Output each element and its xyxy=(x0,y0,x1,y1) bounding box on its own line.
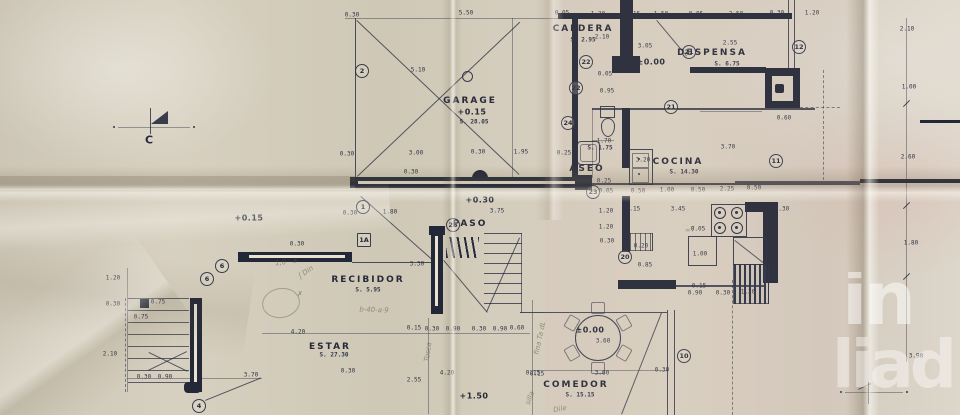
dimension-label: 1.20 xyxy=(599,208,613,215)
level-label: ±0.00 xyxy=(637,58,666,67)
ref-bubble-22: 22 xyxy=(569,81,583,95)
area-label: S. 6.75 xyxy=(714,61,739,68)
dimension-label: 0.30 xyxy=(472,326,486,333)
pencil-note: silla xyxy=(524,390,536,406)
dimension-label: 1.00 xyxy=(902,84,916,91)
area-label: S. 27.30 xyxy=(320,352,349,359)
level-label: +1.50 xyxy=(460,392,489,401)
room-label: ASEO xyxy=(569,164,604,174)
dimension-label: 1.95 xyxy=(514,149,528,156)
area-label: S. 15.15 xyxy=(566,392,595,399)
ref-bubble-20: 20 xyxy=(618,250,632,264)
dimension-label: 2.55 xyxy=(723,40,737,47)
dimension-label: 0.95 xyxy=(600,88,614,95)
ref-bubble-23: 23 xyxy=(586,185,600,199)
dimension-label: 0.90 xyxy=(158,374,172,381)
dimension-label: 2.55 xyxy=(407,377,421,384)
dimension-label: 0.25 xyxy=(597,178,611,185)
dimension-label: 0.60 xyxy=(777,115,791,122)
annotation-layer: 0.305.500.051.200.151.500.052.500.301.20… xyxy=(0,0,960,415)
dimension-label: 1.20 xyxy=(805,10,819,17)
dimension-label: 3.60 xyxy=(596,338,610,345)
area-label: S. 28.05 xyxy=(460,119,489,126)
dimension-label: 0.30 xyxy=(341,368,355,375)
dimension-label: 0.05 xyxy=(599,188,613,195)
dimension-label: 0.90 xyxy=(688,290,702,297)
dimension-label: 3.70 xyxy=(721,144,735,151)
ref-bubble-21: 21 xyxy=(682,45,696,59)
pencil-note: ʃ Din xyxy=(297,264,315,280)
room-label: COMEDOR xyxy=(543,380,608,390)
dimension-label: 0.75 xyxy=(151,299,165,306)
dimension-label: 2.10 xyxy=(595,34,609,41)
room-label: COCINA xyxy=(653,157,704,167)
dimension-label: 1.70 xyxy=(597,138,611,145)
dimension-label: 0.30 xyxy=(137,374,151,381)
dimension-label: 0.50 xyxy=(631,188,645,195)
dimension-label: 0.05 xyxy=(598,71,612,78)
dimension-label: 4.20 xyxy=(440,370,454,377)
area-label: S. 5.95 xyxy=(355,287,380,294)
dimension-label: 1.80 xyxy=(383,209,397,216)
dimension-label: 0.90 xyxy=(446,326,460,333)
dimension-label: 2.25 xyxy=(720,186,734,193)
dimension-label: 0.30 xyxy=(716,290,730,297)
dimension-label: 0.05 xyxy=(689,11,703,18)
dimension-label: 0.50 xyxy=(691,187,705,194)
ref-bubble-6: 6 xyxy=(200,272,214,286)
dimension-label: 5.10 xyxy=(411,67,425,74)
ref-bubble-21: 21 xyxy=(664,100,678,114)
level-label: ±0.00 xyxy=(576,326,605,335)
dimension-label: 0.15 xyxy=(626,11,640,18)
dimension-label: 1.20 xyxy=(599,224,613,231)
pencil-note: 1,0 · a xyxy=(274,257,297,268)
dimension-label: 3.60 xyxy=(595,370,609,377)
dimension-label: 1.00 xyxy=(693,251,707,258)
dimension-label: 0.60 xyxy=(510,325,524,332)
dimension-label: 3.90 xyxy=(909,353,923,360)
dimension-label: 0.25 xyxy=(557,150,571,157)
room-label: ESTAR xyxy=(309,342,351,352)
ref-bubble-22: 22 xyxy=(579,55,593,69)
dimension-label: 4.20 xyxy=(291,329,305,336)
dimension-label: 2.10 xyxy=(900,26,914,33)
room-label: RECIBIDOR xyxy=(331,275,404,285)
dimension-label: 0.30 xyxy=(106,301,120,308)
pencil-note: ✗ xyxy=(297,290,303,298)
dimension-label: 3.30 xyxy=(410,261,424,268)
ref-bubble-25: 25 xyxy=(446,218,460,232)
dimension-label: 2.60 xyxy=(901,154,915,161)
ref-bubble-1A: 1A xyxy=(357,233,371,247)
ref-bubble-12: 12 xyxy=(792,40,806,54)
dimension-label: 0.30 xyxy=(770,10,784,17)
dimension-label: 0.15 xyxy=(692,283,706,290)
ref-bubble-4: 4 xyxy=(192,399,206,413)
pencil-note: Tosca xyxy=(423,342,434,362)
dimension-label: 0.20 xyxy=(634,243,648,250)
dimension-label: 0.15 xyxy=(626,206,640,213)
level-label: +0.30 xyxy=(466,196,495,205)
dimension-label: 3.45 xyxy=(671,206,685,213)
ref-bubble-1: 1 xyxy=(356,200,370,214)
dimension-label: 3.70 xyxy=(244,372,258,379)
dimension-label: 0.30 xyxy=(345,12,359,19)
dimension-label: 3.20 xyxy=(636,157,650,164)
level-label: +0.15 xyxy=(235,214,264,223)
dimension-label: 0.30 xyxy=(290,241,304,248)
ref-bubble-10: 10 xyxy=(677,349,691,363)
dimension-label: 1.80 xyxy=(904,240,918,247)
room-label: GARAGE xyxy=(443,96,497,106)
dimension-label: 0.15 xyxy=(530,371,544,378)
dimension-label: 1.20 xyxy=(106,275,120,282)
dimension-label: 0.05 xyxy=(555,10,569,17)
dimension-label: 0.30 xyxy=(343,210,357,217)
area-label: S. 2.95 xyxy=(570,37,595,44)
dimension-label: 0.30 xyxy=(471,149,485,156)
floor-plan: C 0.305.500.051.200.151.500.052.500.301.… xyxy=(0,0,960,415)
pencil-note: ≈7 xyxy=(684,225,696,235)
dimension-label: 2.50 xyxy=(729,11,743,18)
dimension-label: 3.05 xyxy=(638,43,652,50)
ref-bubble-11: 11 xyxy=(769,154,783,168)
level-label: +0.15 xyxy=(458,108,487,117)
dimension-label: 0.30 xyxy=(775,206,789,213)
dimension-label: 0.90 xyxy=(493,326,507,333)
dimension-label: 0.15 xyxy=(407,325,421,332)
ref-bubble-6: 6 xyxy=(215,259,229,273)
ref-bubble-24: 24 xyxy=(561,116,575,130)
pencil-note: Dile xyxy=(553,404,568,414)
dimension-label: 3.75 xyxy=(490,208,504,215)
dimension-label: 0.85 xyxy=(638,262,652,269)
dimension-label: 1.20 xyxy=(591,11,605,18)
dimension-label: 0.30 xyxy=(340,151,354,158)
pencil-note: b-40-a·9 xyxy=(359,305,389,314)
dimension-label: 2.10 xyxy=(103,351,117,358)
room-label: CALDERA xyxy=(553,24,614,34)
area-label: S. 14.30 xyxy=(670,169,699,176)
dimension-label: 1.20 xyxy=(741,289,755,296)
dimension-label: 3.00 xyxy=(409,150,423,157)
dimension-label: 0.30 xyxy=(404,169,418,176)
dimension-label: 0.30 xyxy=(655,367,669,374)
dimension-label: 5.50 xyxy=(459,10,473,17)
area-label: S. 1.75 xyxy=(587,145,612,152)
ref-bubble-2: 2 xyxy=(355,64,369,78)
dimension-label: 0.75 xyxy=(134,314,148,321)
dimension-label: 0.30 xyxy=(600,238,614,245)
dimension-label: 1.00 xyxy=(660,187,674,194)
dimension-label: 0.50 xyxy=(747,185,761,192)
pencil-note: fina Ta dL xyxy=(533,321,548,356)
dimension-label: 1.50 xyxy=(654,11,668,18)
dimension-label: 0.30 xyxy=(425,326,439,333)
